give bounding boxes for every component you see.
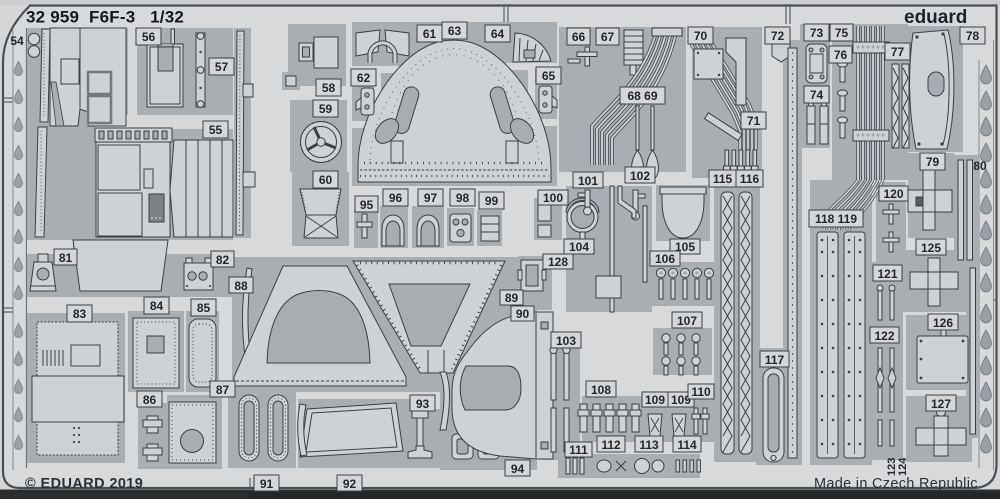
svg-text:84: 84 (150, 299, 164, 313)
svg-text:125: 125 (921, 241, 941, 255)
svg-text:62: 62 (357, 71, 371, 85)
svg-text:108: 108 (591, 383, 611, 397)
svg-text:65: 65 (542, 69, 556, 83)
svg-text:103: 103 (556, 334, 576, 348)
svg-text:61: 61 (423, 27, 437, 41)
svg-text:64: 64 (491, 27, 505, 41)
svg-text:eduard: eduard (904, 7, 967, 28)
svg-text:79: 79 (926, 155, 940, 169)
svg-text:67: 67 (601, 30, 615, 44)
svg-text:90: 90 (516, 307, 530, 321)
svg-text:68 69: 68 69 (627, 89, 657, 103)
svg-text:116: 116 (740, 172, 760, 186)
svg-text:109: 109 (645, 393, 665, 407)
svg-text:99: 99 (485, 194, 499, 208)
svg-text:97: 97 (424, 191, 438, 205)
svg-text:© EDUARD 2019: © EDUARD 2019 (25, 476, 143, 492)
svg-text:77: 77 (891, 45, 905, 59)
svg-text:70: 70 (694, 29, 708, 43)
svg-text:71: 71 (747, 114, 761, 128)
svg-text:80: 80 (973, 159, 987, 173)
svg-text:117: 117 (765, 353, 785, 367)
svg-text:59: 59 (319, 102, 333, 116)
svg-text:118 119: 118 119 (815, 212, 857, 226)
svg-text:111: 111 (569, 443, 588, 457)
svg-text:75: 75 (835, 26, 849, 40)
svg-text:74: 74 (810, 88, 824, 102)
svg-text:58: 58 (322, 81, 336, 95)
svg-text:120: 120 (883, 187, 903, 201)
svg-text:107: 107 (677, 314, 697, 328)
svg-text:55: 55 (209, 123, 223, 137)
svg-text:60: 60 (319, 173, 333, 187)
svg-text:76: 76 (834, 48, 848, 62)
svg-text:127: 127 (931, 397, 951, 411)
svg-text:121: 121 (877, 267, 897, 281)
svg-text:102: 102 (630, 169, 650, 183)
svg-text:54: 54 (10, 34, 24, 48)
svg-text:66: 66 (572, 30, 586, 44)
svg-text:32 959 F6F-3 1/32: 32 959 F6F-3 1/32 (26, 8, 184, 27)
svg-text:93: 93 (416, 397, 430, 411)
svg-text:101: 101 (578, 174, 598, 188)
svg-text:96: 96 (389, 191, 403, 205)
svg-text:Made in Czech Republic: Made in Czech Republic (814, 476, 978, 492)
svg-text:83: 83 (73, 307, 87, 321)
svg-text:82: 82 (216, 253, 230, 267)
svg-text:128: 128 (548, 255, 568, 269)
svg-text:124: 124 (897, 457, 909, 476)
svg-text:95: 95 (360, 198, 374, 212)
svg-text:72: 72 (771, 29, 785, 43)
svg-text:56: 56 (142, 30, 156, 44)
svg-text:112: 112 (601, 438, 621, 452)
svg-text:81: 81 (59, 251, 73, 265)
svg-text:115: 115 (713, 172, 733, 186)
svg-text:57: 57 (215, 60, 229, 74)
svg-text:85: 85 (197, 301, 211, 315)
svg-text:106: 106 (655, 252, 675, 266)
svg-text:104: 104 (569, 240, 589, 254)
svg-text:86: 86 (143, 393, 157, 407)
svg-text:89: 89 (505, 291, 519, 305)
svg-text:122: 122 (874, 329, 894, 343)
svg-text:100: 100 (543, 191, 563, 205)
svg-text:73: 73 (810, 26, 824, 40)
svg-text:110: 110 (691, 385, 711, 399)
svg-text:88: 88 (234, 279, 248, 293)
svg-text:94: 94 (511, 462, 525, 476)
svg-text:87: 87 (216, 383, 230, 397)
svg-text:78: 78 (966, 29, 980, 43)
svg-text:114: 114 (677, 438, 697, 452)
svg-text:113: 113 (639, 438, 659, 452)
svg-text:98: 98 (456, 191, 470, 205)
svg-text:92: 92 (343, 477, 357, 491)
svg-text:126: 126 (933, 316, 953, 330)
svg-text:63: 63 (448, 24, 462, 38)
svg-text:91: 91 (260, 477, 274, 491)
